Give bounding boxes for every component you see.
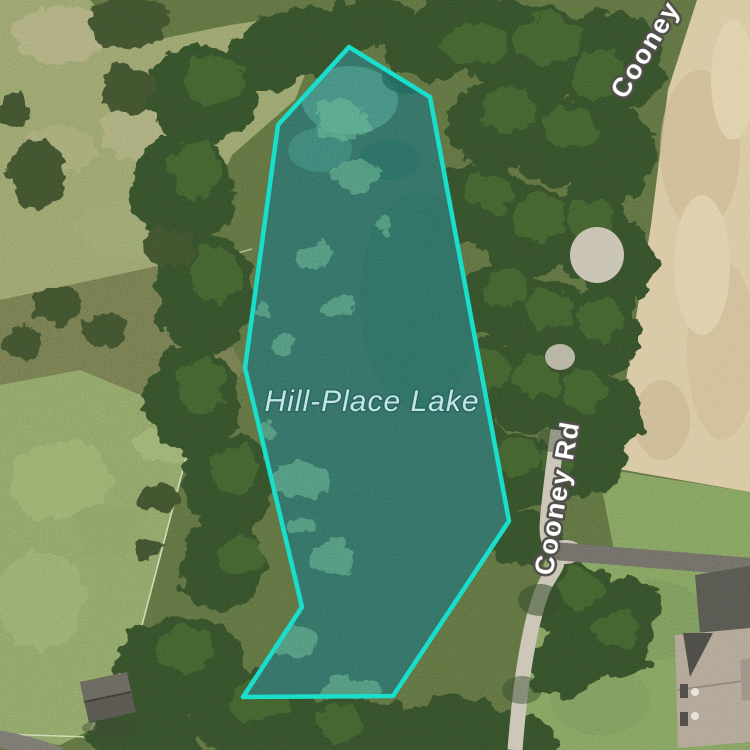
- photo-grain: [0, 0, 750, 750]
- map-canvas[interactable]: Hill-Place Lake Cooney Rd Cooney: [0, 0, 750, 750]
- satellite-map: Hill-Place Lake Cooney Rd Cooney: [0, 0, 750, 750]
- lake-label[interactable]: Hill-Place Lake: [264, 385, 479, 418]
